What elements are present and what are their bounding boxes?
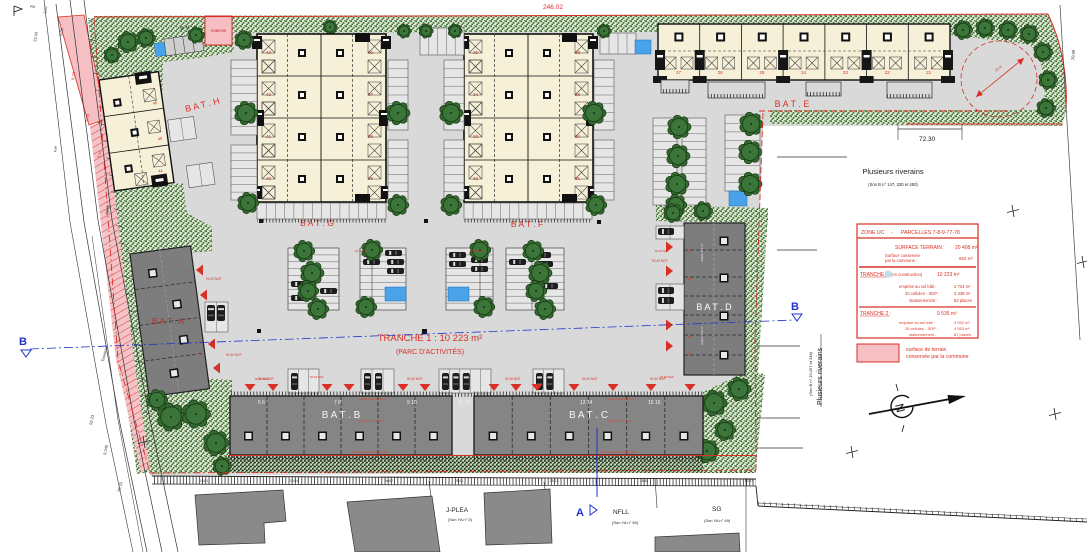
svg-text:PM: PM	[30, 5, 35, 9]
svg-text:soubassement 100.50 NGF: soubassement 100.50 NGF	[352, 450, 389, 454]
svg-text:40: 40	[266, 176, 272, 181]
svg-text:92.40 NGF: 92.40 NGF	[660, 375, 674, 379]
svg-text:92.40 NGF: 92.40 NGF	[206, 277, 222, 281]
svg-text:B A T . D: B A T . D	[696, 302, 732, 312]
svg-text:18: 18	[687, 335, 691, 339]
svg-text:7 8: 7 8	[334, 400, 341, 406]
svg-text:(en construction): (en construction)	[891, 272, 923, 277]
svg-text:B: B	[791, 301, 799, 313]
svg-text:soubassement 100.50 NGF: soubassement 100.50 NGF	[600, 450, 637, 454]
svg-text:-: -	[891, 230, 893, 236]
svg-text:25.01: 25.01	[550, 479, 558, 483]
svg-text:20 cellules - SDP :: 20 cellules - SDP :	[905, 291, 939, 296]
svg-text:17: 17	[687, 352, 691, 356]
svg-text:B A T . E: B A T . E	[775, 99, 810, 109]
svg-text:PARCELLES 7-8-9-77-78: PARCELLES 7-8-9-77-78	[901, 230, 960, 236]
svg-text:35: 35	[473, 50, 479, 55]
svg-text:SG: SG	[712, 506, 721, 513]
svg-text:92.40 NGF: 92.40 NGF	[655, 249, 669, 253]
svg-text:18.40: 18.40	[640, 479, 648, 483]
svg-text:72.30: 72.30	[919, 136, 936, 143]
svg-text:652 m²: 652 m²	[959, 256, 974, 261]
svg-text:246.02: 246.02	[543, 4, 563, 11]
svg-text:faîtage 90.79 NGF: faîtage 90.79 NGF	[359, 419, 384, 423]
svg-text:10.81: 10.81	[200, 479, 208, 483]
svg-text:92.40 NGF: 92.40 NGF	[652, 259, 668, 263]
svg-text:25.01: 25.01	[455, 479, 463, 483]
svg-text:25: 25	[759, 70, 765, 75]
svg-text:B A T . C: B A T . C	[569, 410, 608, 421]
svg-text:32: 32	[473, 176, 479, 181]
svg-text:87 places: 87 places	[954, 332, 971, 337]
svg-text:ZONE UC: ZONE UC	[861, 230, 885, 236]
svg-text:J-PLEA: J-PLEA	[446, 507, 469, 514]
svg-text:3 339 m²: 3 339 m²	[954, 291, 971, 296]
svg-text:9 10: 9 10	[407, 400, 417, 406]
svg-text:34: 34	[473, 92, 479, 97]
svg-text:sablière 100.50 NGF: sablière 100.50 NGF	[359, 397, 387, 401]
svg-text:2 724 m²: 2 724 m²	[954, 284, 971, 289]
svg-text:29.88: 29.88	[1070, 49, 1076, 60]
svg-text:10 223 m²: 10 223 m²	[937, 272, 960, 278]
svg-text:par la commune :: par la commune :	[885, 258, 917, 263]
svg-text:15.84: 15.84	[290, 479, 298, 483]
svg-text:cellule 173 m²: cellule 173 m²	[700, 326, 704, 345]
svg-text:33: 33	[473, 134, 479, 139]
svg-text:cellule 173 m²: cellule 173 m²	[700, 243, 704, 262]
svg-text:emprise au sol bâti :: emprise au sol bâti :	[899, 284, 936, 289]
svg-text:9 535 m²: 9 535 m²	[937, 311, 957, 317]
svg-text:Plusieurs riverains: Plusieurs riverains	[817, 347, 824, 405]
svg-text:B: B	[19, 336, 27, 348]
svg-text:41: 41	[266, 134, 272, 139]
svg-text:22: 22	[885, 70, 891, 75]
svg-text:92.40 NGF: 92.40 NGF	[407, 377, 423, 381]
svg-text:stationnement :: stationnement :	[909, 298, 938, 303]
svg-text:A: A	[576, 507, 584, 519]
svg-text:faîtage 90.79 NGF: faîtage 90.79 NGF	[607, 419, 632, 423]
svg-text:Antenne: Antenne	[211, 28, 227, 33]
svg-text:92.40 NGF: 92.40 NGF	[310, 375, 324, 379]
svg-text:NFLL: NFLL	[613, 509, 629, 516]
svg-text:Plusieurs riverains: Plusieurs riverains	[862, 167, 924, 176]
svg-text:92.40 NGF: 92.40 NGF	[582, 377, 598, 381]
svg-text:SURFACE TERRAIN :: SURFACE TERRAIN :	[895, 245, 945, 251]
svg-text:B A T . B: B A T . B	[322, 410, 361, 421]
svg-text:13 14: 13 14	[580, 400, 593, 406]
svg-text:5 6: 5 6	[258, 400, 265, 406]
svg-text:19: 19	[687, 277, 691, 281]
svg-text:9m27: 9m27	[385, 479, 393, 483]
svg-text:24: 24	[801, 70, 807, 75]
svg-text:21: 21	[926, 70, 932, 75]
svg-text:emprise au sol bâti :: emprise au sol bâti :	[899, 320, 935, 325]
svg-text:TRANCHE 1 : 10 223 m²: TRANCHE 1 : 10 223 m²	[378, 333, 483, 344]
svg-text:11 12: 11 12	[458, 400, 470, 406]
svg-text:4 553 m²: 4 553 m²	[954, 326, 970, 331]
svg-text:B A T . A: B A T . A	[152, 316, 185, 326]
svg-text:92.40 NGF: 92.40 NGF	[226, 353, 242, 357]
svg-text:stationnement :: stationnement :	[909, 332, 936, 337]
svg-text:62 places: 62 places	[954, 298, 972, 303]
svg-text:43: 43	[266, 50, 272, 55]
svg-text:15 16: 15 16	[648, 400, 661, 406]
svg-text:23: 23	[843, 70, 849, 75]
svg-text:92.40 NGF: 92.40 NGF	[505, 377, 521, 381]
svg-text:92.40 NGF: 92.40 NGF	[255, 377, 269, 381]
svg-text:conservée par la commune: conservée par la commune	[906, 354, 969, 360]
svg-text:20 408 m²: 20 408 m²	[955, 245, 978, 251]
svg-text:26: 26	[718, 70, 724, 75]
svg-text:92.40 NGF: 92.40 NGF	[470, 249, 484, 253]
svg-text:26 cellules - SDP :: 26 cellules - SDP :	[905, 326, 938, 331]
svg-text:(Son B n° 10,157 et 348): (Son B n° 10,157 et 348)	[808, 351, 813, 396]
svg-text:sablière 100.50 NGF: sablière 100.50 NGF	[607, 397, 635, 401]
svg-text:27: 27	[676, 70, 682, 75]
svg-text:42: 42	[266, 92, 272, 97]
svg-text:(Son B n° 147, 330 et 450): (Son B n° 147, 330 et 450)	[868, 182, 918, 187]
svg-text:(Son YA n° 5): (Son YA n° 5)	[448, 517, 473, 522]
svg-text:3 092 m²: 3 092 m²	[954, 320, 970, 325]
svg-text:92.40 NGF: 92.40 NGF	[355, 249, 369, 253]
svg-text:(PARC D'ACTIVITÉS): (PARC D'ACTIVITÉS)	[396, 347, 464, 356]
svg-text:20: 20	[687, 249, 691, 253]
svg-text:(Son YA n° 49): (Son YA n° 49)	[704, 518, 731, 523]
svg-text:surface de terrain: surface de terrain	[906, 347, 946, 353]
svg-text:(Son YA n° 50): (Son YA n° 50)	[612, 520, 639, 525]
